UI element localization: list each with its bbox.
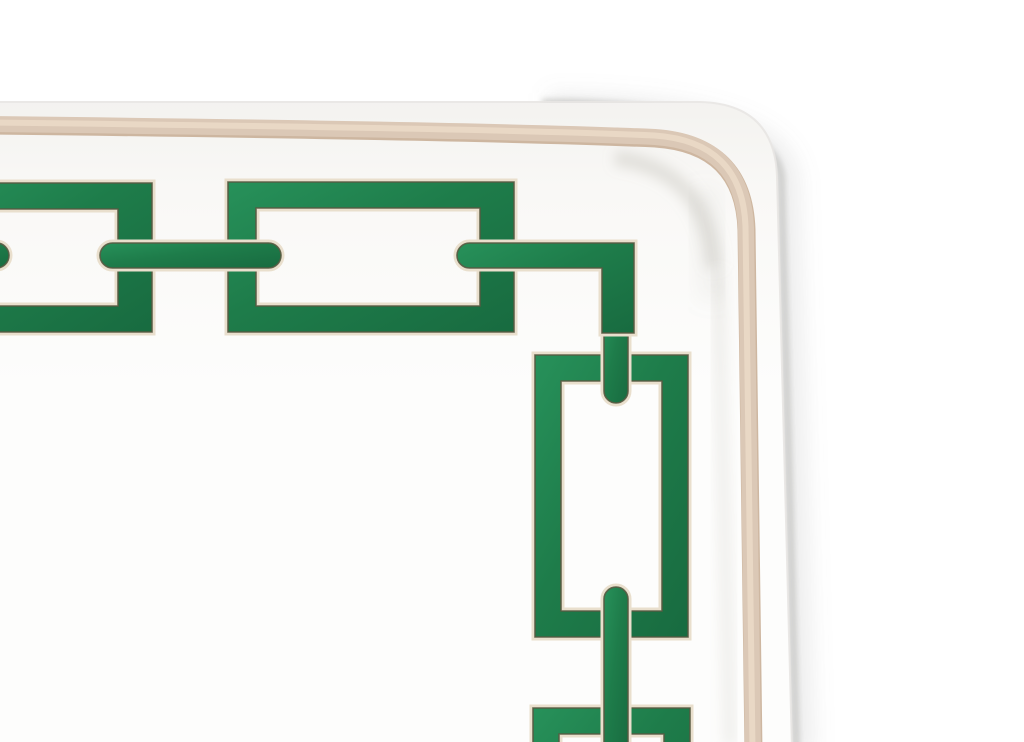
product-photo: An emerald-green interlocking chain bord… [0,0,1024,742]
chain-connector-right [604,587,628,742]
chain-connector-left-edge [0,243,9,268]
chain-connector-top-body [100,243,281,268]
chain-connector-right-body [604,587,628,742]
chain-connector-top [100,243,281,268]
plate-photo-canvas [0,0,1024,742]
